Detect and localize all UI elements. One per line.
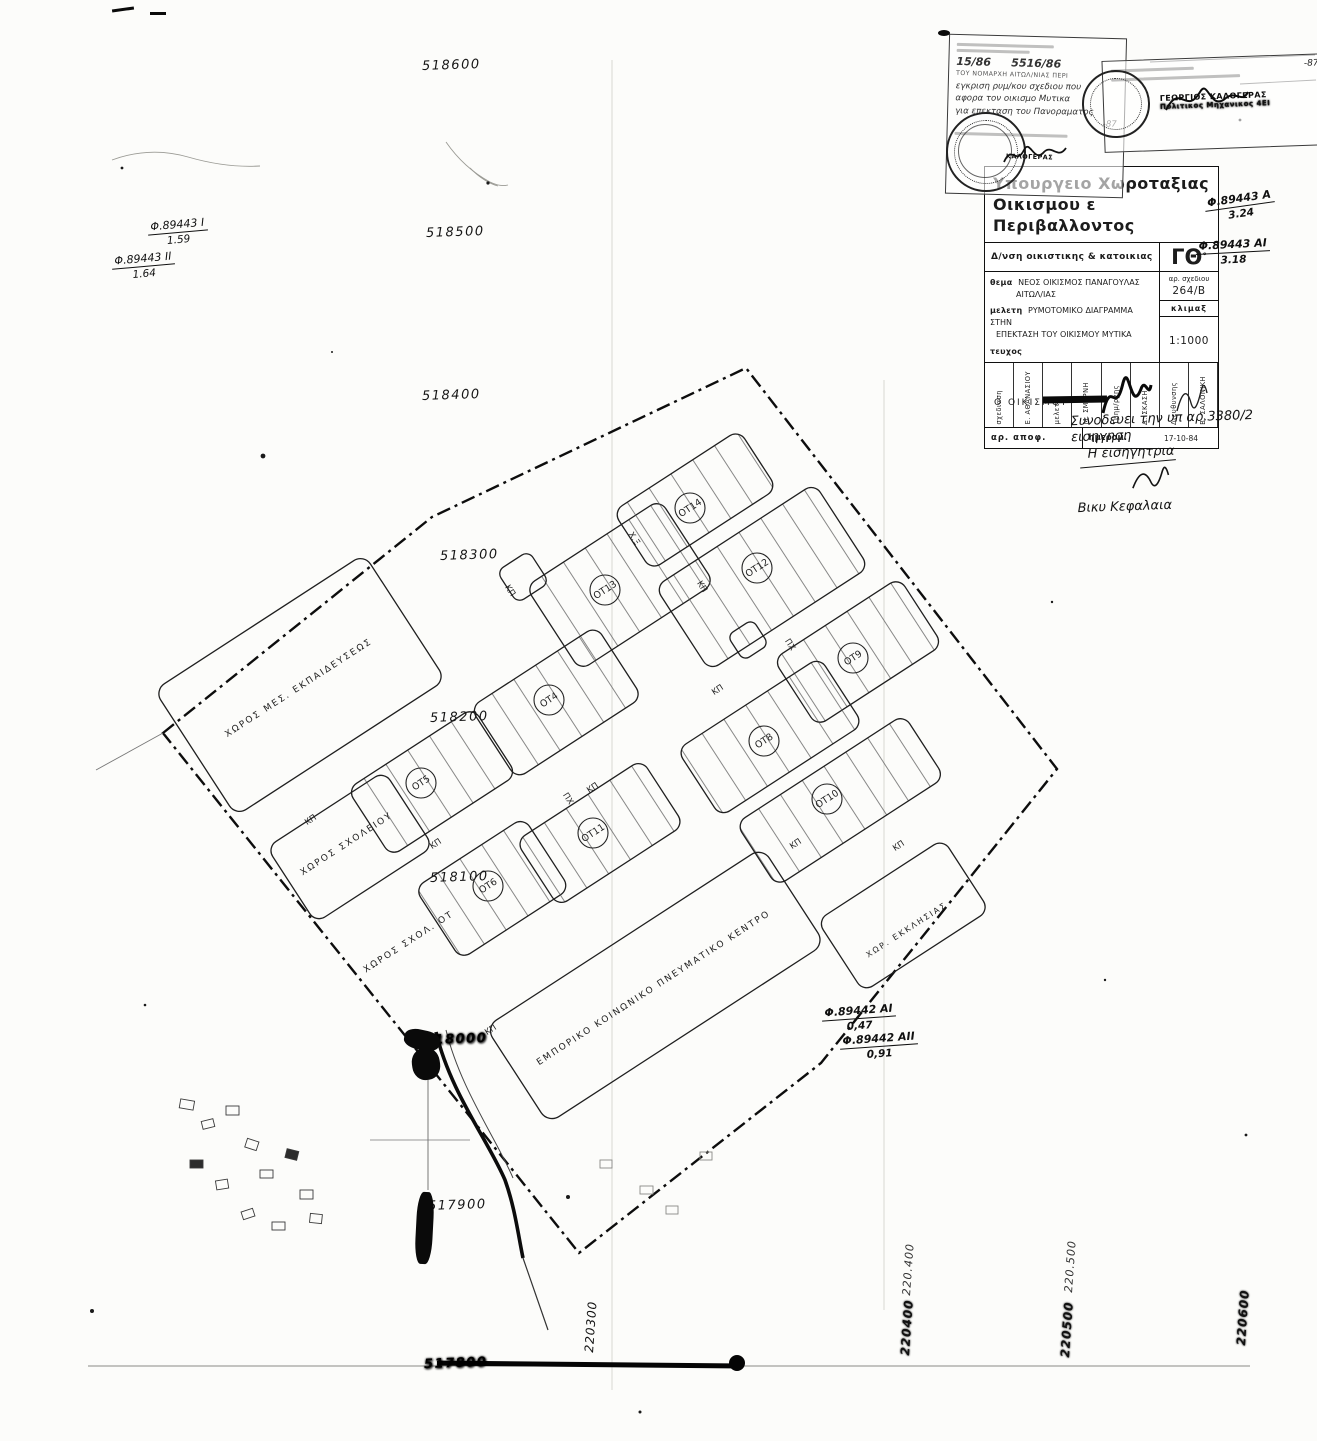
file-ref: Φ.89442 ΑΙΙ 0,91 xyxy=(839,1029,919,1062)
handwritten-note: Συνοδευει την υπ αρ.3380/2 εισηγηση Η ει… xyxy=(1070,406,1317,518)
stamp-number: 5516/86 xyxy=(1011,56,1061,70)
issue-label: τευχος xyxy=(990,346,1151,358)
drawing-no-cell: αρ. σχεδιου 264/Β xyxy=(1160,272,1218,301)
northing-label: 518400 xyxy=(422,387,481,404)
decision-label: αρ. αποφ. xyxy=(985,433,1082,443)
scanned-map-document: ΟΤ14 ΟΤ13 ΟΤ12 ΟΤ9 ΟΤ4 ΟΤ8 ΟΤ5 ΟΤ10 ΟΤ11… xyxy=(0,0,1317,1441)
drawing-no-value: 264/Β xyxy=(1162,283,1216,297)
subject-label: θεμα xyxy=(990,278,1013,287)
street-label-kp: ΚΠ xyxy=(710,683,725,698)
study-label: μελετη xyxy=(990,306,1022,315)
signature-squiggle xyxy=(1000,140,1070,170)
area-label-church: ΧΩΡ. ΕΚΚΛΗΣΙΑΣ xyxy=(865,900,949,959)
subject-line2: ΑΙΤΩΛ/ΙΑΣ xyxy=(990,289,1154,301)
ink-blob xyxy=(938,30,950,36)
northing-label: 517900 xyxy=(428,1197,487,1214)
redaction-smudge xyxy=(1043,395,1107,403)
signature-squiggle xyxy=(1128,463,1173,495)
area-label-education: ΧΩΡΟΣ ΜΕΣ. ΕΚΠΑΙΔΕΥΣΕΩΣ xyxy=(223,637,374,740)
northing-label: 518600 xyxy=(422,57,481,74)
area-label-center: ΕΜΠΟΡΙΚΟ ΚΟΙΝΩΝΙΚΟ ΠΝΕΥΜΑΤΙΚΟ ΚΕΝΤΡΟ xyxy=(535,909,772,1068)
stamp-date: -87 xyxy=(1304,58,1317,69)
study-row: μελετη ΡΥΜΟΤΟΜΙΚΟ ΔΙΑΓΡΑΜΜΑ ΣΤΗΝ xyxy=(990,305,1154,329)
subject-row: θεμα ΝΕΟΣ ΟΙΚΙΣΜΟΣ ΠΑΝΑΓΟΥΛΑΣ xyxy=(990,277,1154,289)
northing-label: 518100 xyxy=(430,869,489,886)
northing-label: 518200 xyxy=(430,709,489,726)
file-ref: Φ.89443 Ι 1.59 xyxy=(147,215,209,248)
street-label-kp: ΚΠ xyxy=(502,583,517,598)
scan-mark xyxy=(150,12,166,15)
directorate-label: Δ/νση οικιστικης & κατοικιας xyxy=(985,243,1159,271)
ministry-line2: Οικισμου ε Περιβαλλοντος xyxy=(993,195,1210,237)
block-church xyxy=(817,839,989,992)
file-ref: Φ.89443 ΙΙ 1.64 xyxy=(111,249,176,282)
study-line2: ΕΠΕΚΤΑΣΗ ΤΟΥ ΟΙΚΙΣΜΟΥ ΜΥΤΙΚΑ xyxy=(990,329,1154,341)
stamp-number: 15/86 xyxy=(956,55,991,69)
subject-line1: ΝΕΟΣ ΟΙΚΙΣΜΟΣ ΠΑΝΑΓΟΥΛΑΣ xyxy=(1018,278,1140,287)
northing-label: 517800 xyxy=(424,1355,488,1372)
drawing-no-label: αρ. σχεδιου xyxy=(1162,275,1216,283)
street-label-kp: ΚΠ xyxy=(891,839,906,854)
contour-squiggles xyxy=(112,142,508,186)
file-ref: Φ.89442 ΑΙ 0,47 xyxy=(821,1001,897,1034)
street-label-kp: ΚΠ xyxy=(428,837,443,852)
northing-label: 518300 xyxy=(440,547,499,564)
scale-value: 1:1000 xyxy=(1169,333,1209,347)
signature-squiggle xyxy=(1160,80,1250,120)
scale-label: κλιμαξ xyxy=(1160,301,1218,317)
area-label-school2: ΧΩΡΟΣ ΣΧΟΛ. ΟΤ xyxy=(362,909,456,975)
file-ref: Φ.89443 ΑΙ 3.18 xyxy=(1195,236,1271,268)
northing-label: 518500 xyxy=(426,224,485,241)
